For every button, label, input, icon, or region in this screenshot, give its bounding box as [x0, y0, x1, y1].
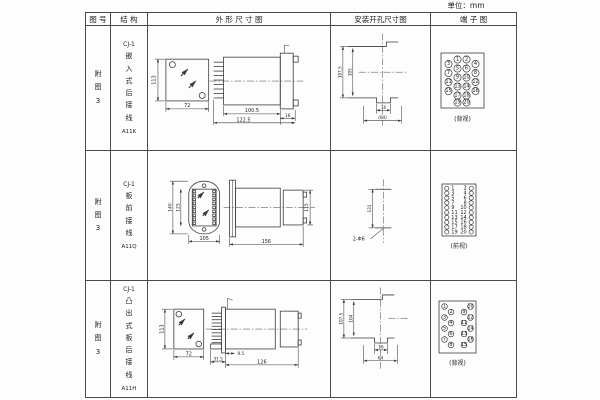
dim-label: 105 — [347, 67, 352, 75]
svg-text:12: 12 — [467, 314, 473, 320]
dim-label: 9.5 — [238, 350, 245, 355]
row2-fig-label: 附图3 — [94, 196, 103, 236]
svg-text:20: 20 — [460, 229, 466, 235]
row1-mounting-cell: 107.5 105 16 (64) — [331, 26, 431, 151]
svg-text:4: 4 — [449, 320, 452, 326]
dim-label: 107.5 — [338, 312, 343, 324]
svg-text:14: 14 — [463, 83, 469, 89]
svg-text:17: 17 — [454, 92, 460, 98]
screw-mark-icon — [179, 319, 185, 325]
svg-text:6: 6 — [449, 331, 452, 337]
view-label: (背视) — [449, 359, 466, 367]
svg-text:10: 10 — [467, 303, 473, 309]
outline-drawing-a11h: 113 72 31.5 9.5 126 — [148, 281, 330, 397]
terminal-diagram-a11k: 1234567891011121314151617181920 (背视) — [431, 26, 516, 151]
svg-text:18: 18 — [463, 92, 469, 98]
svg-text:8: 8 — [449, 342, 452, 348]
svg-text:3: 3 — [443, 314, 446, 320]
svg-text:20: 20 — [463, 99, 469, 105]
svg-text:16: 16 — [472, 88, 478, 94]
row3-fig-label: 附图3 — [94, 319, 103, 359]
mounting-drawing-a11q: 131 2-Φ6 — [331, 151, 430, 281]
header-fig-no: 图 号 — [86, 13, 111, 26]
row2-model-label: CJ-1 — [123, 181, 135, 188]
svg-text:2: 2 — [449, 309, 452, 315]
header-structure: 结 构 — [111, 13, 148, 26]
svg-text:9: 9 — [462, 309, 465, 315]
hole-callout: 2-Φ6 — [353, 236, 365, 242]
svg-text:11: 11 — [445, 79, 451, 85]
row1-fig-label: 附图3 — [94, 68, 103, 108]
svg-text:10: 10 — [463, 74, 469, 80]
terminal-diagram-a11q: 1234567891011121314151617181920 (前视) — [431, 151, 516, 281]
row2-fig-cell: 附图3 — [86, 151, 111, 281]
svg-text:7: 7 — [447, 70, 450, 76]
mounting-drawing-a11k: 107.5 105 16 (64) — [331, 26, 430, 151]
terminal-pins — [214, 62, 224, 98]
dim-label: 72 — [186, 351, 192, 357]
row2-mounting-cell: 131 2-Φ6 — [331, 151, 431, 281]
view-label: (背视) — [454, 115, 471, 123]
svg-text:9: 9 — [456, 74, 459, 80]
mounting-drawing-a11h: 107.5 104 16 64 — [331, 281, 430, 397]
svg-text:5: 5 — [443, 325, 446, 331]
dim-label: 113 — [159, 324, 165, 333]
dim-label: 72 — [184, 102, 190, 108]
svg-text:7: 7 — [443, 336, 446, 342]
dim-label: 140 — [167, 203, 173, 212]
dim-label: 156 — [262, 238, 271, 244]
row2-outline-cell: 140 125 105 156 115 — [148, 151, 331, 281]
screw-mark-icon — [203, 210, 209, 216]
dim-label: 122.5 — [236, 117, 250, 123]
svg-text:19: 19 — [451, 229, 457, 235]
unit-label: 单位：mm — [417, 0, 515, 11]
screw-mark-icon — [181, 69, 188, 76]
outline-drawing-a11k: 113 72 100.5 16 122.5 — [148, 26, 330, 151]
terminal-pins — [212, 313, 222, 343]
svg-text:2: 2 — [465, 56, 468, 62]
dim-label: 126 — [257, 359, 266, 365]
row1-structure-cell: CJ-1 嵌入式后接线 A11K — [111, 26, 148, 151]
row1-outline-cell: 113 72 100.5 16 122.5 — [148, 26, 331, 151]
header-mounting: 安装开孔尺寸图 — [331, 13, 431, 26]
svg-text:8: 8 — [474, 70, 477, 76]
row3-model-label: CJ-1 — [123, 286, 135, 293]
dim-label: 105 — [199, 235, 208, 241]
dim-label: 115 — [304, 203, 310, 212]
row2-terminal-cell: 1234567891011121314151617181920 (前视) — [431, 151, 516, 281]
dim-label: 100.5 — [245, 107, 259, 113]
svg-text:19: 19 — [454, 99, 460, 105]
svg-text:16: 16 — [467, 336, 473, 342]
row2-code-label: A11Q — [121, 244, 136, 250]
dim-label: 113 — [151, 75, 157, 84]
row1-model-label: CJ-1 — [123, 41, 135, 48]
svg-text:13: 13 — [461, 331, 467, 337]
dim-label: 104 — [348, 314, 353, 322]
dim-label: 16 — [285, 112, 291, 117]
row3-structure-cell: CJ-1 凸出式板后接线 A11H — [111, 281, 148, 397]
screw-mark-icon — [198, 192, 204, 198]
view-label: (前视) — [451, 242, 468, 250]
row1-code-label: A11K — [122, 129, 136, 135]
terminal-circles: 12345678910111213141516 — [442, 303, 474, 348]
svg-text:13: 13 — [454, 83, 460, 89]
document-page: 单位：mm 图 号 结 构 外 形 尺 寸 图 安装开孔尺寸图 端 子 图 附图… — [0, 0, 600, 400]
svg-text:15: 15 — [461, 342, 467, 348]
dim-label: 16 — [381, 104, 387, 109]
dim-label: 125 — [175, 203, 181, 212]
row2-structure-label: 板前接线 — [125, 190, 134, 239]
svg-text:15: 15 — [445, 88, 451, 94]
terminal-diagram-a11h: 12345678910111213141516 (背视) — [431, 281, 516, 397]
dim-label: (64) — [378, 115, 387, 120]
screw-mark-icon — [188, 333, 194, 339]
row1-terminal-cell: 1234567891011121314151617181920 (背视) — [431, 26, 516, 151]
row3-mounting-cell: 107.5 104 16 64 — [331, 281, 431, 397]
terminal-squares — [193, 190, 196, 224]
spec-table: 图 号 结 构 外 形 尺 寸 图 安装开孔尺寸图 端 子 图 附图3 CJ-1… — [85, 12, 517, 398]
outline-drawing-a11q: 140 125 105 156 115 — [148, 151, 330, 281]
dim-label: 131 — [367, 204, 372, 212]
header-outline: 外 形 尺 寸 图 — [148, 13, 331, 26]
svg-text:6: 6 — [465, 65, 468, 71]
dim-label: 16 — [378, 344, 384, 349]
svg-text:14: 14 — [467, 325, 473, 331]
svg-text:3: 3 — [447, 61, 450, 67]
row3-terminal-cell: 12345678910111213141516 (背视) — [431, 281, 516, 397]
svg-text:12: 12 — [472, 79, 478, 85]
row1-structure-label: 嵌入式后接线 — [125, 50, 134, 124]
terminal-circles: 1234567891011121314151617181920 — [445, 55, 479, 105]
svg-text:11: 11 — [461, 320, 467, 326]
terminal-circles: 1234567891011121314151617181920 — [445, 185, 474, 235]
row2-structure-cell: CJ-1 板前接线 A11Q — [111, 151, 148, 281]
svg-text:5: 5 — [456, 65, 459, 71]
svg-text:1: 1 — [456, 56, 459, 62]
terminal-squares — [213, 190, 216, 224]
row1-fig-cell: 附图3 — [86, 26, 111, 151]
dim-label: 64 — [378, 355, 384, 360]
svg-text:1: 1 — [443, 303, 446, 309]
screw-mark-icon — [189, 81, 196, 88]
header-terminal: 端 子 图 — [431, 13, 516, 26]
row3-structure-label: 凸出式板后接线 — [125, 295, 134, 381]
row3-fig-cell: 附图3 — [86, 281, 111, 397]
row3-code-label: A11H — [122, 386, 137, 392]
dim-label: 107.5 — [337, 65, 342, 77]
svg-text:4: 4 — [474, 61, 477, 67]
dim-label: 31.5 — [213, 356, 223, 361]
row3-outline-cell: 113 72 31.5 9.5 126 — [148, 281, 331, 397]
